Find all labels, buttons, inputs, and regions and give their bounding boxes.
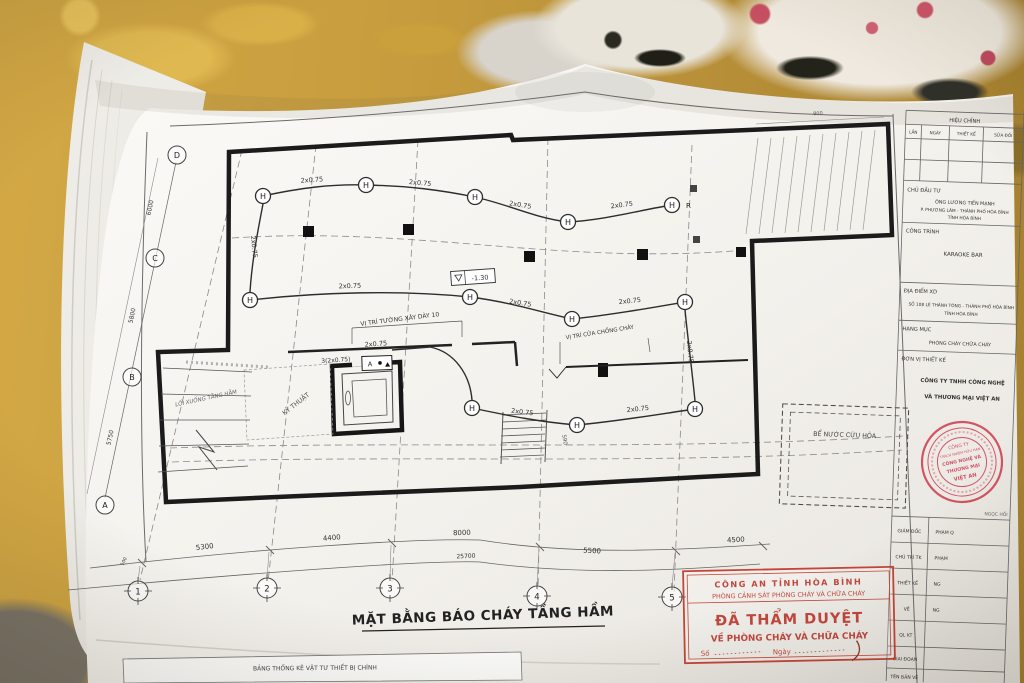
panel-symbol: A xyxy=(368,360,373,368)
materials-table-title: BẢNG THỐNG KÊ VẬT TƯ THIẾT BỊ CHÍNH xyxy=(253,663,377,672)
level-value: -1.30 xyxy=(471,273,488,282)
stamp-so-label: Số xyxy=(701,650,711,658)
fire-panel: A xyxy=(362,355,392,370)
dim-value: 5500 xyxy=(583,547,601,556)
grid-label: C xyxy=(152,254,158,263)
credit-value: PHẠM Q xyxy=(935,530,954,537)
grid-label: B xyxy=(129,373,135,382)
dim-value: 4500 xyxy=(727,536,745,545)
cable-label: 2x0.75 xyxy=(339,282,362,291)
drawing-photo-svg: KỸ THUẬT LỐI XUỐNG TẦNG HẦM 590 -1.30 xyxy=(0,0,1024,683)
photo-of-blueprint: KỸ THUẬT LỐI XUỐNG TẦNG HẦM 590 -1.30 xyxy=(0,0,1024,683)
dim-total: 25700 xyxy=(456,553,476,561)
detector-symbol: H xyxy=(247,296,253,305)
detector-symbol: H xyxy=(469,404,475,413)
revision-col: SỬA ĐỔI xyxy=(994,132,1012,138)
detector-symbol: H xyxy=(669,201,675,210)
detector-symbol: H xyxy=(363,181,369,190)
section-label: CÔNG TRÌNH xyxy=(906,227,940,235)
revision-col: THIẾT KẾ xyxy=(956,130,976,137)
grid-label: 1 xyxy=(135,588,140,598)
detector-symbol: H xyxy=(565,218,571,227)
grid-label: 5 xyxy=(669,594,674,604)
credit-value: NG xyxy=(933,608,941,614)
dim-value: 800 xyxy=(813,111,823,117)
section-label: HẠNG MỤC xyxy=(902,326,931,333)
detector-symbol: H xyxy=(682,298,688,307)
revision-col: NGÀY xyxy=(929,130,941,135)
credit-label: QL KT xyxy=(899,632,912,638)
credit-label: GIAI ĐOẠN xyxy=(892,656,917,663)
detector-symbol: H xyxy=(574,421,580,430)
revision-col: LẦN xyxy=(909,129,918,134)
grid-label: 2 xyxy=(264,585,269,595)
grid-label: 4 xyxy=(534,593,539,603)
cable-label: 2x0.75 xyxy=(364,339,387,349)
detector-symbol: H xyxy=(472,193,478,202)
approval-stamp: CÔNG AN TỈNH HÒA BÌNH PHÒNG CẢNH SÁT PHÒ… xyxy=(683,567,895,664)
stamp-ngay-label: Ngày xyxy=(773,648,791,656)
credit-value: PHẠM xyxy=(934,556,948,562)
detector-symbol: H xyxy=(467,293,473,302)
detector-symbol: H xyxy=(260,192,266,201)
detector-symbol: H xyxy=(569,315,575,324)
level-marker: -1.30 xyxy=(451,268,496,285)
dim-value: 8000 xyxy=(453,529,471,538)
grid-label: A xyxy=(102,501,108,510)
grid-label: D xyxy=(174,151,180,160)
grid-label: 3 xyxy=(387,585,392,595)
cable-label: 2x0.75 xyxy=(300,175,323,185)
detector-symbol: H xyxy=(692,405,698,414)
end-resistor-label: R xyxy=(686,202,691,210)
credit-value: NG xyxy=(933,582,941,588)
dim-value: 4400 xyxy=(323,533,341,543)
